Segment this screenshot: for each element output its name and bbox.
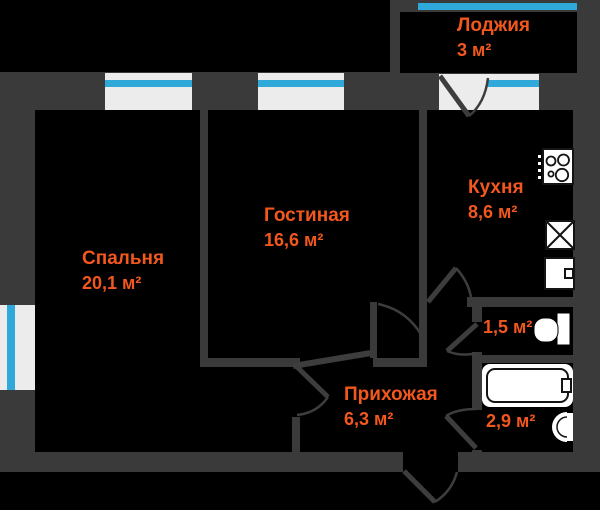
- room-bathroom: [482, 363, 573, 452]
- doorway-entrance: [403, 452, 458, 472]
- window-glass: [258, 80, 344, 87]
- label-hallway: Прихожая 6,3 м²: [344, 383, 438, 431]
- label-bedroom: Спальня 20,1 м²: [82, 247, 164, 295]
- floor-plan: Лоджия 3 м² Спальня 20,1 м² Гостиная 16,…: [0, 0, 600, 510]
- label-loggia: Лоджия 3 м²: [457, 14, 530, 62]
- label-kitchen: Кухня 8,6 м²: [468, 176, 524, 224]
- balcony-window-glass: [487, 80, 539, 87]
- window-icon: [0, 305, 35, 390]
- room-hallway-alcove: [427, 307, 472, 367]
- doorway-wc: [472, 322, 482, 352]
- label-living: Гостиная 16,6 м²: [264, 204, 350, 252]
- doorway-living: [300, 358, 373, 367]
- doorway-bedroom: [292, 367, 300, 417]
- window-icon: [105, 73, 192, 110]
- doorway-kitchen: [427, 297, 467, 307]
- label-bathroom: 2,9 м²: [486, 409, 535, 433]
- label-wc: 1,5 м²: [483, 315, 532, 339]
- room-bedroom-extension: [200, 367, 292, 452]
- window-icon: [258, 73, 344, 110]
- doorway-bathroom: [472, 410, 482, 450]
- window-glass: [105, 80, 192, 87]
- loggia-glazing: [418, 3, 577, 10]
- living-door-jamb: [370, 302, 377, 358]
- window-glass: [7, 305, 15, 390]
